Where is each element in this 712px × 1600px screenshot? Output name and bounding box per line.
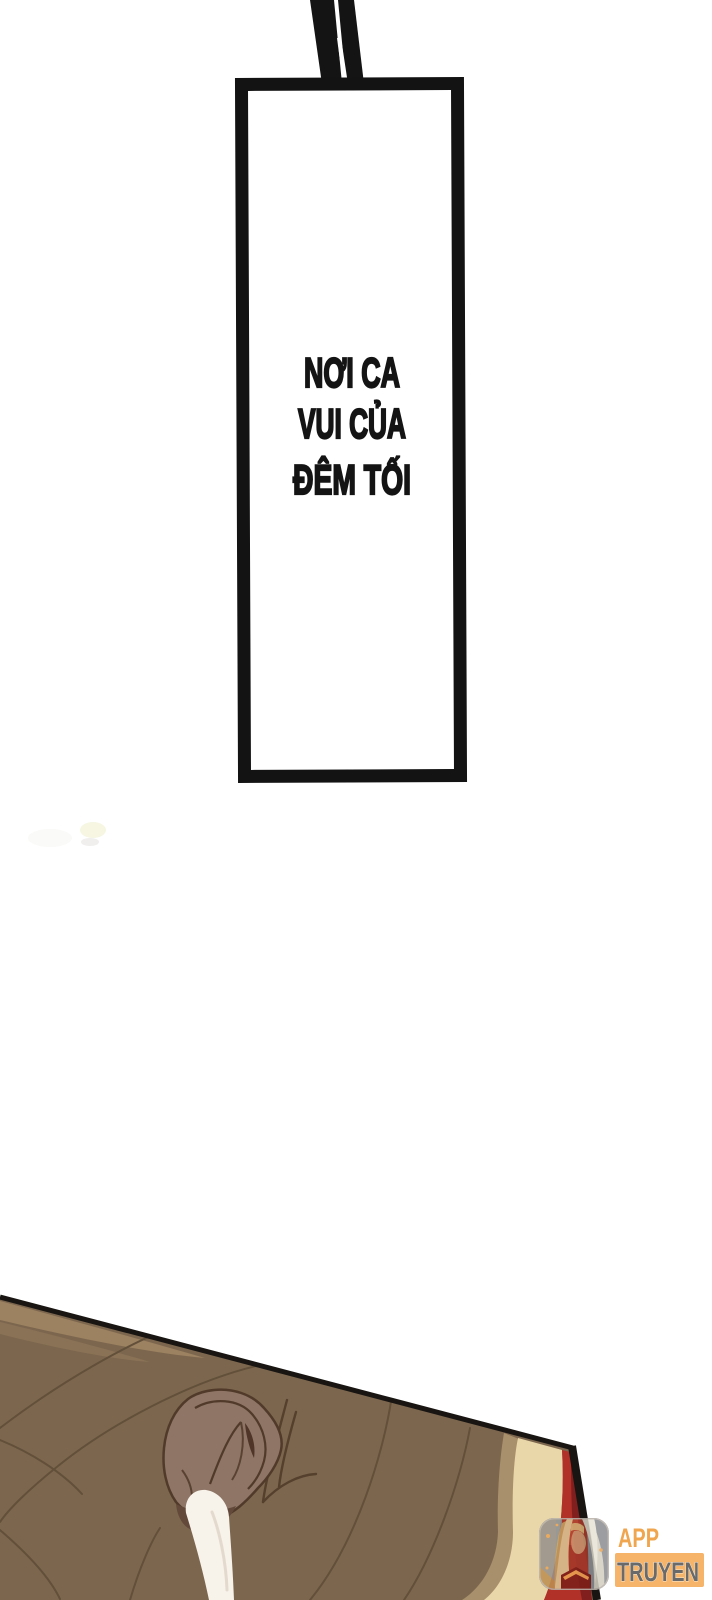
svg-text:ĐÊM TỐI: ĐÊM TỐI bbox=[293, 455, 411, 503]
svg-text:VUI CỦA: VUI CỦA bbox=[298, 399, 406, 447]
svg-text:APP: APP bbox=[618, 1523, 659, 1553]
svg-text:NƠI CA: NƠI CA bbox=[304, 349, 400, 396]
svg-text:TRUYEN: TRUYEN bbox=[617, 1557, 699, 1587]
